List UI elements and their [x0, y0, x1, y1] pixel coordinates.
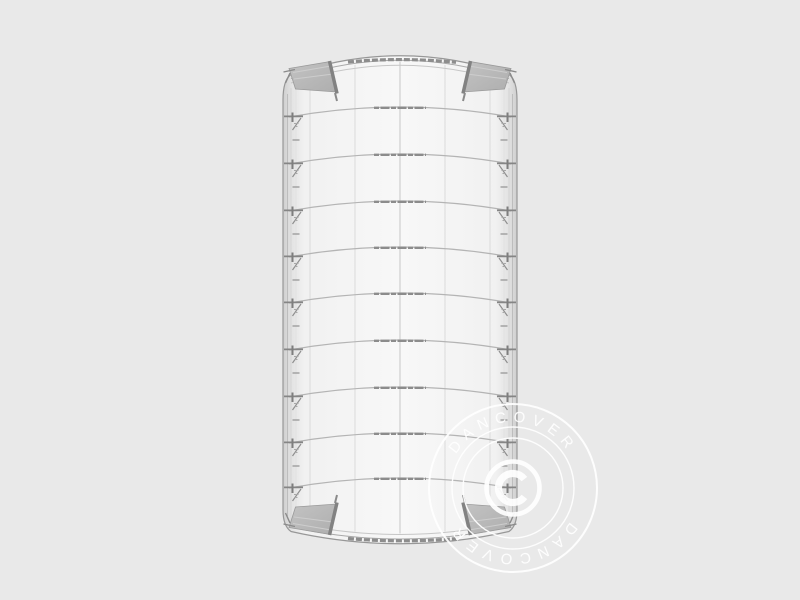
tent-top-view-drawing: DANCOVER DANCOVER — [0, 0, 800, 600]
product-image-canvas: DANCOVER DANCOVER — [0, 0, 800, 600]
